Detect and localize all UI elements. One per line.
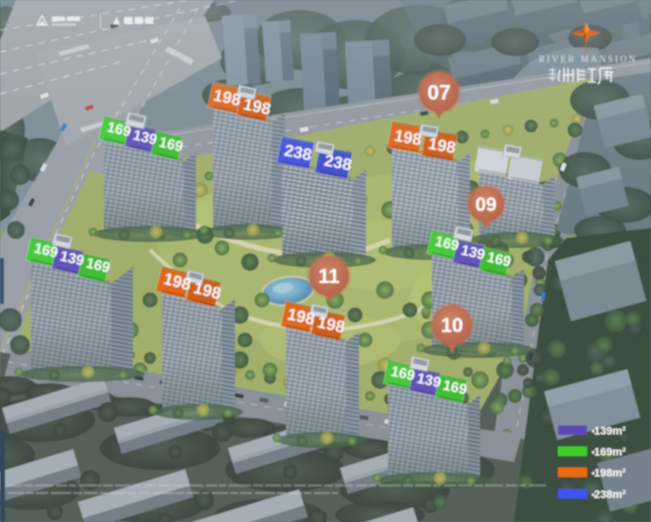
svg-text:11: 11 [318,266,339,288]
svg-text:169m²: 169m² [594,446,626,458]
svg-text:10: 10 [441,315,463,337]
svg-text:RIVER MANSION: RIVER MANSION [539,54,638,64]
svg-text:198m²: 198m² [594,467,626,479]
svg-text:07: 07 [427,82,450,105]
svg-text:09: 09 [475,195,496,216]
svg-text:139m²: 139m² [594,425,626,437]
svg-text:238m²: 238m² [594,489,626,501]
